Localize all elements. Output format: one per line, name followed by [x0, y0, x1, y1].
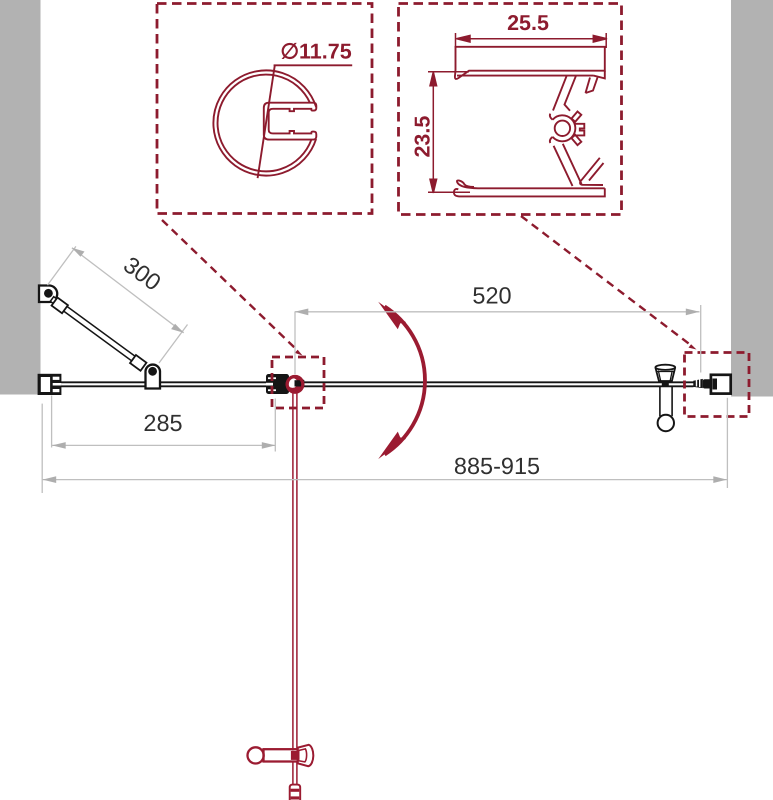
- svg-text:285: 285: [143, 410, 182, 436]
- svg-text:25.5: 25.5: [507, 11, 549, 35]
- svg-text:23.5: 23.5: [411, 116, 435, 158]
- svg-text:885-915: 885-915: [454, 453, 540, 479]
- svg-text:520: 520: [472, 283, 511, 309]
- svg-text:∅11.75: ∅11.75: [280, 40, 351, 64]
